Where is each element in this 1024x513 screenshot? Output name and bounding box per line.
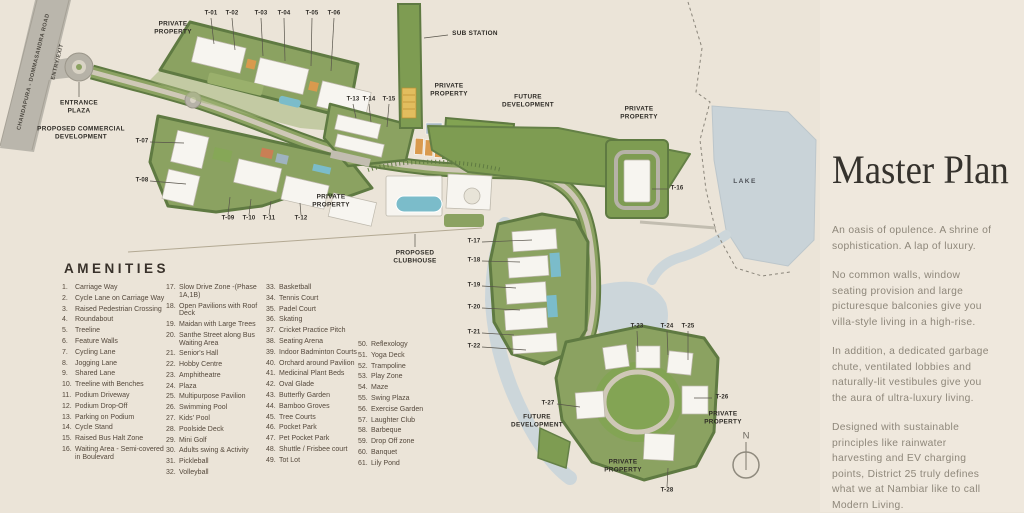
amenity-text: Multipurpose Pavilion — [179, 393, 274, 401]
amenity-item: 3.Raised Pedestrian Crossing — [62, 306, 166, 314]
amenity-text: Bamboo Groves — [279, 403, 364, 411]
amenity-number: 60. — [358, 449, 371, 457]
amenity-item: 45.Tree Courts — [266, 414, 364, 422]
amenity-number: 57. — [358, 417, 371, 425]
amenity-text: Raised Bus Halt Zone — [75, 435, 166, 443]
amenity-number: 58. — [358, 427, 371, 435]
amenity-item: 21.Senior's Hall — [166, 350, 274, 358]
amenity-text: Padel Court — [279, 306, 364, 314]
amenity-number: 8. — [62, 360, 75, 368]
amenity-item: 52.Trampoline — [358, 363, 444, 371]
amenity-text: Lily Pond — [371, 460, 444, 468]
amenity-number: 7. — [62, 349, 75, 357]
amenity-item: 2.Cycle Lane on Carriage Way — [62, 295, 166, 303]
amenity-number: 42. — [266, 381, 279, 389]
amenity-number: 15. — [62, 435, 75, 443]
amenity-number: 29. — [166, 437, 179, 445]
amenity-item: 39.Indoor Badminton Courts — [266, 349, 364, 357]
amenity-number: 23. — [166, 372, 179, 380]
amenity-item: 11.Podium Driveway — [62, 392, 166, 400]
amenity-item: 60.Banquet — [358, 449, 444, 457]
amenity-text: Pet Pocket Park — [279, 435, 364, 443]
amenity-item: 37.Cricket Practice Pitch — [266, 327, 364, 335]
amenity-number: 9. — [62, 370, 75, 378]
amenity-text: Cycle Lane on Carriage Way — [75, 295, 166, 303]
amenity-number: 2. — [62, 295, 75, 303]
amenity-item: 51.Yoga Deck — [358, 352, 444, 360]
amenity-item: 40.Orchard around Pavilion — [266, 360, 364, 368]
amenity-number: 55. — [358, 395, 371, 403]
amenity-number: 4. — [62, 316, 75, 324]
amenity-item: 9.Shared Lane — [62, 370, 166, 378]
amenities-title: AMENITIES — [64, 261, 169, 276]
amenity-item: 26.Swimming Pool — [166, 404, 274, 412]
amenity-item: 33.Basketball — [266, 284, 364, 292]
amenity-item: 10.Treeline with Benches — [62, 381, 166, 389]
amenity-number: 36. — [266, 316, 279, 324]
amenity-item: 30.Adults swing & Activity — [166, 447, 274, 455]
amenity-item: 18.Open Pavilions with Roof Deck — [166, 303, 274, 318]
amenity-number: 5. — [62, 327, 75, 335]
amenity-text: Tree Courts — [279, 414, 364, 422]
amenity-item: 44.Bamboo Groves — [266, 403, 364, 411]
amenity-number: 54. — [358, 384, 371, 392]
amenity-item: 27.Kids' Pool — [166, 415, 274, 423]
amenity-number: 53. — [358, 373, 371, 381]
amenity-item: 15.Raised Bus Halt Zone — [62, 435, 166, 443]
amenity-text: Pocket Park — [279, 424, 364, 432]
amenity-number: 35. — [266, 306, 279, 314]
amenity-number: 27. — [166, 415, 179, 423]
amenity-item: 6.Feature Walls — [62, 338, 166, 346]
amenity-number: 39. — [266, 349, 279, 357]
amenity-text: Cricket Practice Pitch — [279, 327, 364, 335]
amenity-text: Treeline with Benches — [75, 381, 166, 389]
amenity-item: 12.Podium Drop-Off — [62, 403, 166, 411]
amenity-item: 5.Treeline — [62, 327, 166, 335]
amenity-item: 4.Roundabout — [62, 316, 166, 324]
amenity-text: Amphitheatre — [179, 372, 274, 380]
amenity-item: 23.Amphitheatre — [166, 372, 274, 380]
amenity-text: Senior's Hall — [179, 350, 274, 358]
amenity-number: 61. — [358, 460, 371, 468]
amenity-number: 49. — [266, 457, 279, 465]
amenity-text: Feature Walls — [75, 338, 166, 346]
amenity-number: 45. — [266, 414, 279, 422]
amenity-text: Barbeque — [371, 427, 444, 435]
amenity-number: 1. — [62, 284, 75, 292]
amenity-number: 22. — [166, 361, 179, 369]
amenity-text: Parking on Podium — [75, 414, 166, 422]
amenity-text: Exercise Garden — [371, 406, 444, 414]
amenity-text: Maidan with Large Trees — [179, 321, 274, 329]
amenity-number: 12. — [62, 403, 75, 411]
amenity-text: Volleyball — [179, 469, 274, 477]
amenity-text: Carriage Way — [75, 284, 166, 292]
amenity-number: 59. — [358, 438, 371, 446]
amenity-item: 61.Lily Pond — [358, 460, 444, 468]
amenity-text: Banquet — [371, 449, 444, 457]
amenities-column: 50.Reflexology51.Yoga Deck52.Trampoline5… — [358, 341, 444, 471]
amenity-item: 46.Pocket Park — [266, 424, 364, 432]
amenity-item: 56.Exercise Garden — [358, 406, 444, 414]
amenity-text: Swimming Pool — [179, 404, 274, 412]
amenity-text: Santhe Street along Bus Waiting Area — [179, 332, 274, 347]
amenity-text: Drop Off zone — [371, 438, 444, 446]
description-paragraph: An oasis of opulence. A shrine of sophis… — [832, 223, 996, 254]
amenity-text: Swing Plaza — [371, 395, 444, 403]
amenity-number: 21. — [166, 350, 179, 358]
amenity-number: 10. — [62, 381, 75, 389]
amenity-number: 40. — [266, 360, 279, 368]
amenity-number: 11. — [62, 392, 75, 400]
amenity-text: Medicinal Plant Beds — [279, 370, 364, 378]
amenity-item: 19.Maidan with Large Trees — [166, 321, 274, 329]
amenity-text: Tennis Court — [279, 295, 364, 303]
amenity-item: 32.Volleyball — [166, 469, 274, 477]
amenity-item: 28.Poolside Deck — [166, 426, 274, 434]
amenity-number: 14. — [62, 424, 75, 432]
amenity-text: Tot Lot — [279, 457, 364, 465]
amenity-text: Podium Driveway — [75, 392, 166, 400]
amenity-text: Basketball — [279, 284, 364, 292]
amenity-number: 38. — [266, 338, 279, 346]
amenity-text: Kids' Pool — [179, 415, 274, 423]
amenity-item: 16.Waiting Area - Semi-covered in Boulev… — [62, 446, 166, 461]
amenity-number: 26. — [166, 404, 179, 412]
amenity-text: Cycling Lane — [75, 349, 166, 357]
amenity-item: 57.Laughter Club — [358, 417, 444, 425]
amenity-number: 30. — [166, 447, 179, 455]
amenity-number: 47. — [266, 435, 279, 443]
amenity-item: 1.Carriage Way — [62, 284, 166, 292]
amenity-text: Adults swing & Activity — [179, 447, 274, 455]
amenity-number: 48. — [266, 446, 279, 454]
page-title: Master Plan — [832, 146, 990, 193]
amenity-item: 48.Shuttle / Frisbee court — [266, 446, 364, 454]
amenity-text: Shuttle / Frisbee court — [279, 446, 364, 454]
amenity-text: Podium Drop-Off — [75, 403, 166, 411]
amenity-item: 17.Slow Drive Zone -(Phase 1A,1B) — [166, 284, 274, 299]
amenity-text: Play Zone — [371, 373, 444, 381]
amenity-item: 50.Reflexology — [358, 341, 444, 349]
amenity-text: Jogging Lane — [75, 360, 166, 368]
amenity-item: 41.Medicinal Plant Beds — [266, 370, 364, 378]
amenity-number: 32. — [166, 469, 179, 477]
amenity-number: 46. — [266, 424, 279, 432]
amenity-text: Open Pavilions with Roof Deck — [179, 303, 274, 318]
amenity-text: Shared Lane — [75, 370, 166, 378]
amenities-column: 1.Carriage Way2.Cycle Lane on Carriage W… — [62, 284, 166, 464]
amenity-number: 44. — [266, 403, 279, 411]
amenity-number: 56. — [358, 406, 371, 414]
amenity-item: 20.Santhe Street along Bus Waiting Area — [166, 332, 274, 347]
description-paragraph: In addition, a dedicated garbage chute, … — [832, 344, 996, 406]
amenity-item: 43.Butterfly Garden — [266, 392, 364, 400]
description-panel: Master Plan An oasis of opulence. A shri… — [820, 0, 1024, 512]
amenity-text: Mini Golf — [179, 437, 274, 445]
amenity-number: 50. — [358, 341, 371, 349]
amenities-column: 33.Basketball34.Tennis Court35.Padel Cou… — [266, 284, 364, 468]
amenity-text: Slow Drive Zone -(Phase 1A,1B) — [179, 284, 274, 299]
amenity-number: 18. — [166, 303, 179, 318]
amenity-number: 34. — [266, 295, 279, 303]
amenities-legend: AMENITIES 1.Carriage Way2.Cycle Lane on … — [0, 0, 848, 512]
amenity-number: 28. — [166, 426, 179, 434]
amenity-text: Laughter Club — [371, 417, 444, 425]
amenity-item: 58.Barbeque — [358, 427, 444, 435]
amenity-number: 52. — [358, 363, 371, 371]
amenity-number: 20. — [166, 332, 179, 347]
amenity-number: 3. — [62, 306, 75, 314]
amenity-item: 8.Jogging Lane — [62, 360, 166, 368]
amenity-item: 13.Parking on Podium — [62, 414, 166, 422]
amenity-text: Raised Pedestrian Crossing — [75, 306, 166, 314]
amenity-number: 16. — [62, 446, 75, 461]
amenity-number: 33. — [266, 284, 279, 292]
amenity-text: Poolside Deck — [179, 426, 274, 434]
amenity-item: 53.Play Zone — [358, 373, 444, 381]
amenity-item: 34.Tennis Court — [266, 295, 364, 303]
amenities-column: 17.Slow Drive Zone -(Phase 1A,1B)18.Open… — [166, 284, 274, 480]
amenity-text: Reflexology — [371, 341, 444, 349]
amenity-text: Oval Glade — [279, 381, 364, 389]
amenity-item: 49.Tot Lot — [266, 457, 364, 465]
amenity-text: Roundabout — [75, 316, 166, 324]
amenity-item: 14.Cycle Stand — [62, 424, 166, 432]
amenity-number: 6. — [62, 338, 75, 346]
amenity-item: 24.Plaza — [166, 383, 274, 391]
amenity-text: Plaza — [179, 383, 274, 391]
amenity-item: 55.Swing Plaza — [358, 395, 444, 403]
amenity-text: Treeline — [75, 327, 166, 335]
amenity-item: 25.Multipurpose Pavilion — [166, 393, 274, 401]
amenity-text: Orchard around Pavilion — [279, 360, 364, 368]
amenity-number: 51. — [358, 352, 371, 360]
amenity-number: 24. — [166, 383, 179, 391]
amenity-number: 37. — [266, 327, 279, 335]
amenity-text: Skating — [279, 316, 364, 324]
amenity-item: 38.Seating Arena — [266, 338, 364, 346]
amenity-item: 42.Oval Glade — [266, 381, 364, 389]
amenity-text: Seating Arena — [279, 338, 364, 346]
amenity-number: 41. — [266, 370, 279, 378]
amenity-number: 17. — [166, 284, 179, 299]
amenity-text: Waiting Area - Semi-covered in Boulevard — [75, 446, 166, 461]
amenity-text: Pickleball — [179, 458, 274, 466]
amenity-text: Butterfly Garden — [279, 392, 364, 400]
amenity-number: 13. — [62, 414, 75, 422]
amenity-item: 35.Padel Court — [266, 306, 364, 314]
amenity-item: 36.Skating — [266, 316, 364, 324]
amenity-item: 47.Pet Pocket Park — [266, 435, 364, 443]
amenity-item: 22.Hobby Centre — [166, 361, 274, 369]
description-paragraph: Designed with sustainable principles lik… — [832, 420, 996, 513]
amenity-text: Cycle Stand — [75, 424, 166, 432]
amenity-number: 31. — [166, 458, 179, 466]
amenity-item: 31.Pickleball — [166, 458, 274, 466]
amenity-item: 7.Cycling Lane — [62, 349, 166, 357]
amenity-text: Yoga Deck — [371, 352, 444, 360]
amenity-text: Hobby Centre — [179, 361, 274, 369]
amenity-number: 19. — [166, 321, 179, 329]
amenity-item: 29.Mini Golf — [166, 437, 274, 445]
amenity-number: 43. — [266, 392, 279, 400]
amenity-item: 59.Drop Off zone — [358, 438, 444, 446]
description-paragraph: No common walls, window seating provisio… — [832, 268, 996, 330]
amenity-text: Trampoline — [371, 363, 444, 371]
amenity-text: Maze — [371, 384, 444, 392]
amenity-item: 54.Maze — [358, 384, 444, 392]
amenity-number: 25. — [166, 393, 179, 401]
amenity-text: Indoor Badminton Courts — [279, 349, 364, 357]
